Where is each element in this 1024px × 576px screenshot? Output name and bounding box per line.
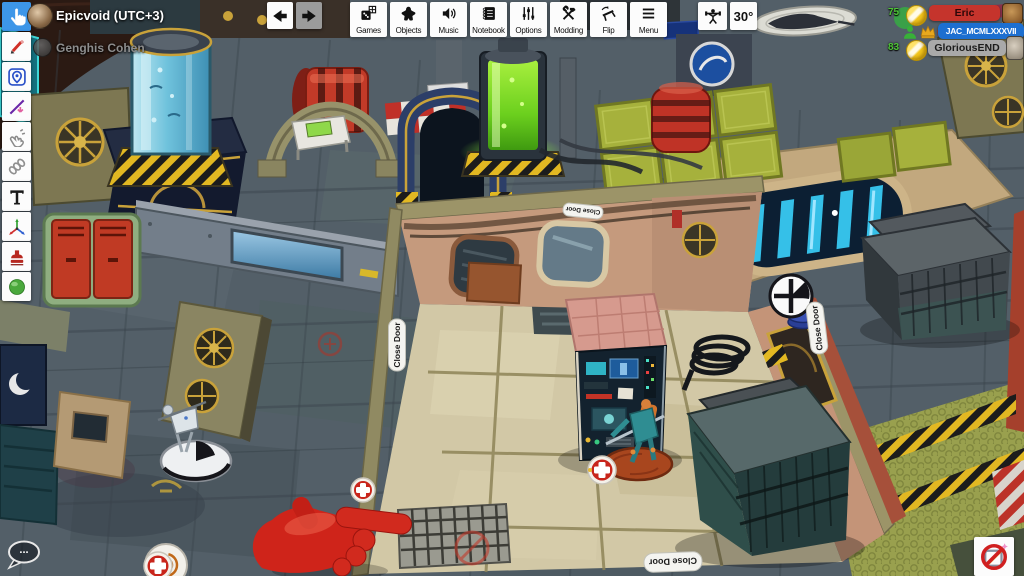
clear-drawings-button[interactable]	[974, 537, 1014, 576]
hamburger-menu-icon	[640, 5, 657, 22]
toolbar-flip-button[interactable]: Flip	[590, 2, 627, 37]
flick-tool-button[interactable]	[2, 122, 31, 151]
toolbar-notebook-button[interactable]: Notebook	[470, 2, 507, 37]
hand-pointer-icon	[7, 7, 27, 27]
nav-back-button[interactable]	[267, 2, 293, 29]
text-tool-button[interactable]	[2, 182, 31, 211]
stamp-icon	[7, 247, 27, 267]
map-pin-icon	[7, 67, 27, 87]
lift-height-button[interactable]	[698, 2, 727, 30]
svg-text:...: ...	[19, 544, 28, 556]
close-door-button[interactable]: Close Door	[389, 319, 406, 371]
svg-text:Close Door: Close Door	[648, 556, 697, 568]
hammer-wrench-icon	[560, 5, 577, 22]
toolbar-objects-button[interactable]: Objects	[390, 2, 427, 37]
meeple-icon	[400, 5, 417, 22]
red-lockers[interactable]	[44, 214, 140, 306]
toolbar-label: Menu	[639, 27, 658, 35]
tabletop-simulator-screen: Close Door Close Door Close Door Close D…	[0, 0, 1024, 576]
toolbar-label: Objects	[396, 27, 422, 35]
notebook-icon	[480, 5, 497, 22]
player-color-ball[interactable]	[906, 40, 927, 61]
pencil-icon	[7, 37, 27, 57]
close-door-button[interactable]: Close Door	[644, 551, 703, 572]
line-tool-button[interactable]	[2, 92, 31, 121]
player-pill[interactable]: Eric	[929, 5, 1000, 21]
flip-table-icon	[600, 5, 617, 22]
text-T-icon	[7, 187, 27, 207]
weightlifter-icon	[703, 6, 723, 26]
chain-links-icon	[7, 157, 27, 177]
toolbar-options-button[interactable]: Options	[510, 2, 547, 37]
arrow-left-icon	[271, 7, 289, 25]
svg-text:Close Door: Close Door	[392, 322, 402, 368]
ping-value: 83	[888, 42, 899, 53]
speaker-icon	[440, 5, 457, 22]
game-table-scene[interactable]: Close Door Close Door Close Door Close D…	[0, 0, 1024, 576]
toolbar-games-button[interactable]: Games	[350, 2, 387, 37]
player-name[interactable]: Genghis Cohen	[56, 41, 145, 55]
medkit-token[interactable]	[588, 456, 616, 484]
rotation-angle-value: 30°	[734, 9, 754, 24]
nav-forward-button[interactable]	[296, 2, 322, 29]
avatar[interactable]	[1002, 3, 1023, 24]
avatar[interactable]	[33, 38, 52, 57]
draw-tool-button[interactable]	[2, 32, 31, 61]
medkit-token[interactable]	[144, 552, 172, 576]
ping-value: 75	[888, 7, 899, 18]
sphere-tool-button[interactable]	[2, 272, 31, 301]
decal-tool-button[interactable]	[2, 242, 31, 271]
host-crown-icon	[919, 23, 937, 41]
seated-person-icon	[901, 23, 919, 41]
toolbar-label: Flip	[602, 27, 614, 35]
floor-vent-grate	[398, 504, 510, 568]
toolbar-modding-button[interactable]: Modding	[550, 2, 587, 37]
no-drawing-icon	[979, 542, 1009, 572]
avatar[interactable]	[27, 3, 53, 29]
player-pill[interactable]: GloriousEND	[928, 40, 1006, 56]
line-arrow-icon	[7, 97, 27, 117]
toolbar-label: Modding	[554, 27, 583, 35]
joint-tool-button[interactable]	[2, 152, 31, 181]
toolbar-label: Games	[356, 27, 381, 35]
toolbar-music-button[interactable]: Music	[430, 2, 467, 37]
red-tank-vertical[interactable]	[652, 82, 710, 152]
arrow-right-icon	[300, 7, 318, 25]
gizmo-tool-button[interactable]	[2, 212, 31, 241]
medkit-token[interactable]	[351, 478, 375, 502]
toolbar-label: Music	[439, 27, 459, 35]
toolbar-label: Notebook	[472, 27, 505, 35]
porthole-window	[538, 222, 607, 285]
xyz-axes-icon	[7, 217, 27, 237]
flick-hand-icon	[7, 127, 27, 147]
green-ball-icon	[7, 277, 27, 297]
avatar[interactable]	[1006, 36, 1024, 60]
toolbar-label: Options	[515, 27, 541, 35]
zone-tool-button[interactable]	[2, 62, 31, 91]
toolbar-menu-button[interactable]: Menu	[630, 2, 667, 37]
player-name[interactable]: Epicvoid (UTC+3)	[56, 8, 164, 23]
sliders-icon	[520, 5, 537, 22]
games-dice-icon	[360, 5, 377, 22]
rotation-angle-button[interactable]: 30°	[730, 2, 757, 30]
